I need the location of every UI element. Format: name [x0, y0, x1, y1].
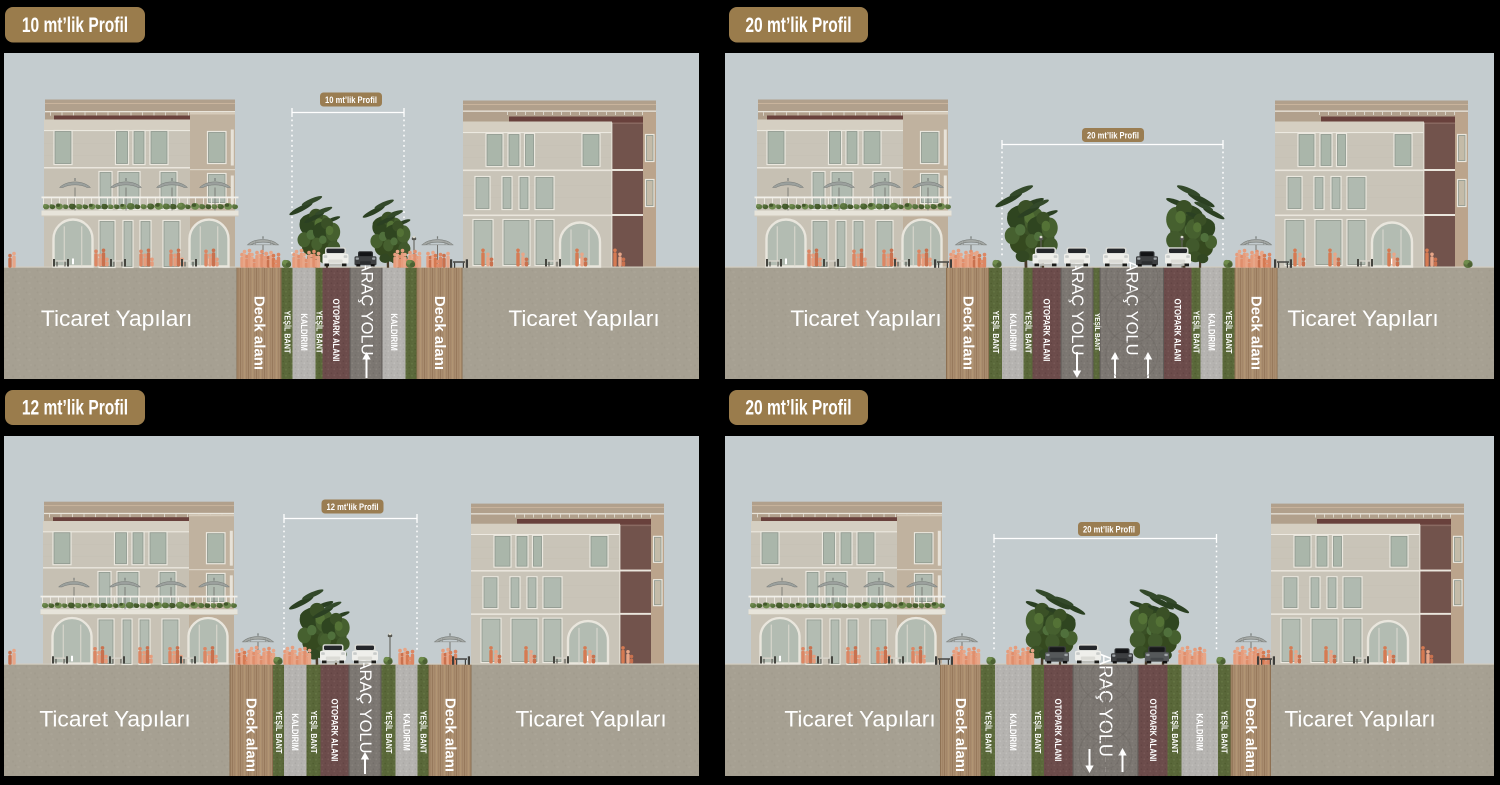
svg-text:KALDIRIM: KALDIRIM — [1206, 313, 1217, 350]
svg-text:20 mt’lik Profil: 20 mt’lik Profil — [745, 395, 851, 419]
svg-text:Deck alanı: Deck alanı — [442, 698, 459, 772]
svg-text:10 mt’lik Profil: 10 mt’lik Profil — [325, 94, 377, 105]
svg-text:OTOPARK ALANI: OTOPARK ALANI — [1053, 699, 1064, 762]
svg-text:Ticaret Yapıları: Ticaret Yapıları — [41, 306, 192, 331]
svg-text:YEŞİL BANT: YEŞİL BANT — [309, 711, 319, 754]
svg-text:Deck alanı: Deck alanı — [952, 698, 969, 772]
svg-text:Ticaret Yapıları: Ticaret Yapıları — [515, 707, 666, 732]
svg-text:Ticaret Yapıları: Ticaret Yapıları — [39, 707, 190, 732]
svg-text:KALDIRIM: KALDIRIM — [299, 313, 310, 350]
svg-text:YEŞİL BANT: YEŞİL BANT — [418, 711, 428, 754]
svg-text:KALDIRIM: KALDIRIM — [1008, 313, 1019, 350]
svg-text:OTOPARK ALANI: OTOPARK ALANI — [1041, 299, 1052, 362]
svg-text:OTOPARK ALANI: OTOPARK ALANI — [1148, 699, 1159, 762]
svg-text:YEŞİL BANT: YEŞİL BANT — [282, 311, 292, 354]
svg-text:10 mt’lik Profil: 10 mt’lik Profil — [22, 13, 128, 37]
svg-text:KALDIRIM: KALDIRIM — [389, 313, 400, 350]
svg-text:OTOPARK ALANI: OTOPARK ALANI — [331, 299, 342, 362]
svg-text:YEŞİL BANT: YEŞİL BANT — [384, 711, 394, 754]
svg-text:YEŞİL BANT: YEŞİL BANT — [1033, 711, 1043, 754]
svg-text:12 mt’lik Profil: 12 mt’lik Profil — [22, 395, 128, 419]
svg-text:Ticaret Yapıları: Ticaret Yapıları — [790, 306, 941, 331]
svg-text:KALDIRIM: KALDIRIM — [1194, 713, 1205, 750]
svg-text:Ticaret Yapıları: Ticaret Yapıları — [508, 306, 659, 331]
svg-text:Ticaret Yapıları: Ticaret Yapıları — [1287, 306, 1438, 331]
svg-text:YEŞİL BANT: YEŞİL BANT — [1170, 711, 1180, 754]
svg-text:YEŞİL BANT: YEŞİL BANT — [1093, 313, 1103, 351]
svg-text:Deck alanı: Deck alanı — [1242, 698, 1259, 772]
svg-text:YEŞİL BANT: YEŞİL BANT — [1023, 311, 1033, 354]
svg-text:KALDIRIM: KALDIRIM — [1008, 713, 1019, 750]
svg-text:Ticaret Yapıları: Ticaret Yapıları — [1284, 707, 1435, 732]
svg-text:20 mt’lik Profil: 20 mt’lik Profil — [1087, 129, 1139, 140]
svg-text:Deck alanı: Deck alanı — [1248, 296, 1265, 370]
svg-text:YEŞİL BANT: YEŞİL BANT — [1219, 711, 1229, 754]
svg-text:YEŞİL BANT: YEŞİL BANT — [314, 311, 324, 354]
svg-text:20 mt’lik Profil: 20 mt’lik Profil — [745, 13, 851, 37]
svg-text:12 mt’lik Profil: 12 mt’lik Profil — [327, 501, 379, 512]
svg-text:Deck alanı: Deck alanı — [251, 296, 268, 370]
svg-text:YEŞİL BANT: YEŞİL BANT — [1191, 311, 1201, 354]
svg-text:YEŞİL BANT: YEŞİL BANT — [274, 711, 284, 754]
svg-text:KALDIRIM: KALDIRIM — [290, 713, 301, 750]
svg-text:20 mt’lik Profil: 20 mt’lik Profil — [1083, 523, 1135, 534]
svg-text:YEŞİL BANT: YEŞİL BANT — [1224, 311, 1234, 354]
svg-text:ARAÇ YOLU: ARAÇ YOLU — [356, 658, 374, 753]
svg-text:Deck alanı: Deck alanı — [960, 296, 977, 370]
svg-text:ARAÇ YOLU: ARAÇ YOLU — [358, 260, 376, 355]
svg-text:Ticaret Yapıları: Ticaret Yapıları — [784, 707, 935, 732]
svg-text:ARAÇ YOLU: ARAÇ YOLU — [1068, 260, 1086, 355]
svg-text:KALDIRIM: KALDIRIM — [401, 713, 412, 750]
svg-text:Deck alanı: Deck alanı — [243, 698, 260, 772]
svg-text:OTOPARK ALANI: OTOPARK ALANI — [329, 699, 340, 762]
svg-text:OTOPARK ALANI: OTOPARK ALANI — [1172, 299, 1183, 362]
svg-text:YEŞİL BANT: YEŞİL BANT — [991, 311, 1001, 354]
svg-text:YEŞİL BANT: YEŞİL BANT — [983, 711, 993, 754]
svg-text:Deck alanı: Deck alanı — [431, 296, 448, 370]
